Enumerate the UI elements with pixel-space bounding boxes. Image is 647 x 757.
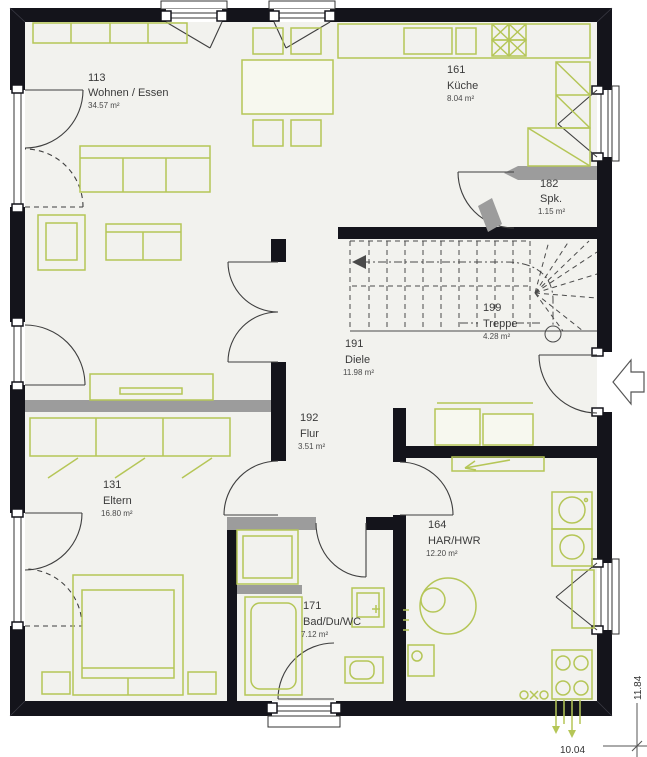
room-area: 11.98 m² bbox=[343, 368, 374, 377]
room-area: 3.51 m² bbox=[298, 442, 325, 451]
room-name: Küche bbox=[447, 80, 478, 92]
floor-plan-page: 113 Wohnen / Essen 34.57 m² 161 Küche 8.… bbox=[0, 0, 647, 757]
kitchen-hob bbox=[492, 24, 526, 56]
room-name: Wohnen / Essen bbox=[88, 87, 169, 99]
room-name: Flur bbox=[300, 428, 319, 440]
floor-plan-drawing: 113 Wohnen / Essen 34.57 m² 161 Küche 8.… bbox=[0, 0, 647, 757]
room-area: 1.15 m² bbox=[538, 207, 565, 216]
room-number: 199 bbox=[483, 302, 501, 314]
room-number: 192 bbox=[300, 412, 318, 424]
room-number: 131 bbox=[103, 479, 121, 491]
room-name: Bad/Du/WC bbox=[303, 616, 361, 628]
room-area: 16.80 m² bbox=[101, 509, 133, 518]
room-number: 171 bbox=[303, 600, 321, 612]
room-number: 164 bbox=[428, 519, 446, 531]
room-area: 4.28 m² bbox=[483, 332, 510, 341]
room-area: 12.20 m² bbox=[426, 549, 458, 558]
room-area: 34.57 m² bbox=[88, 101, 120, 110]
dimension-width: 10.04 bbox=[560, 745, 585, 756]
entrance-arrow-icon bbox=[613, 360, 644, 404]
room-number: 113 bbox=[88, 72, 106, 84]
shower-divider bbox=[237, 585, 302, 594]
room-name: Diele bbox=[345, 354, 370, 366]
room-number: 191 bbox=[345, 338, 363, 350]
room-name: Treppe bbox=[483, 318, 517, 330]
room-area: 8.04 m² bbox=[447, 94, 474, 103]
room-name: HAR/HWR bbox=[428, 535, 481, 547]
room-name: Spk. bbox=[540, 193, 562, 205]
room-number: 161 bbox=[447, 64, 465, 76]
room-number: 182 bbox=[540, 178, 558, 190]
room-name: Eltern bbox=[103, 495, 132, 507]
room-area: 7.12 m² bbox=[301, 630, 328, 639]
dimension-height: 11.84 bbox=[633, 675, 644, 700]
